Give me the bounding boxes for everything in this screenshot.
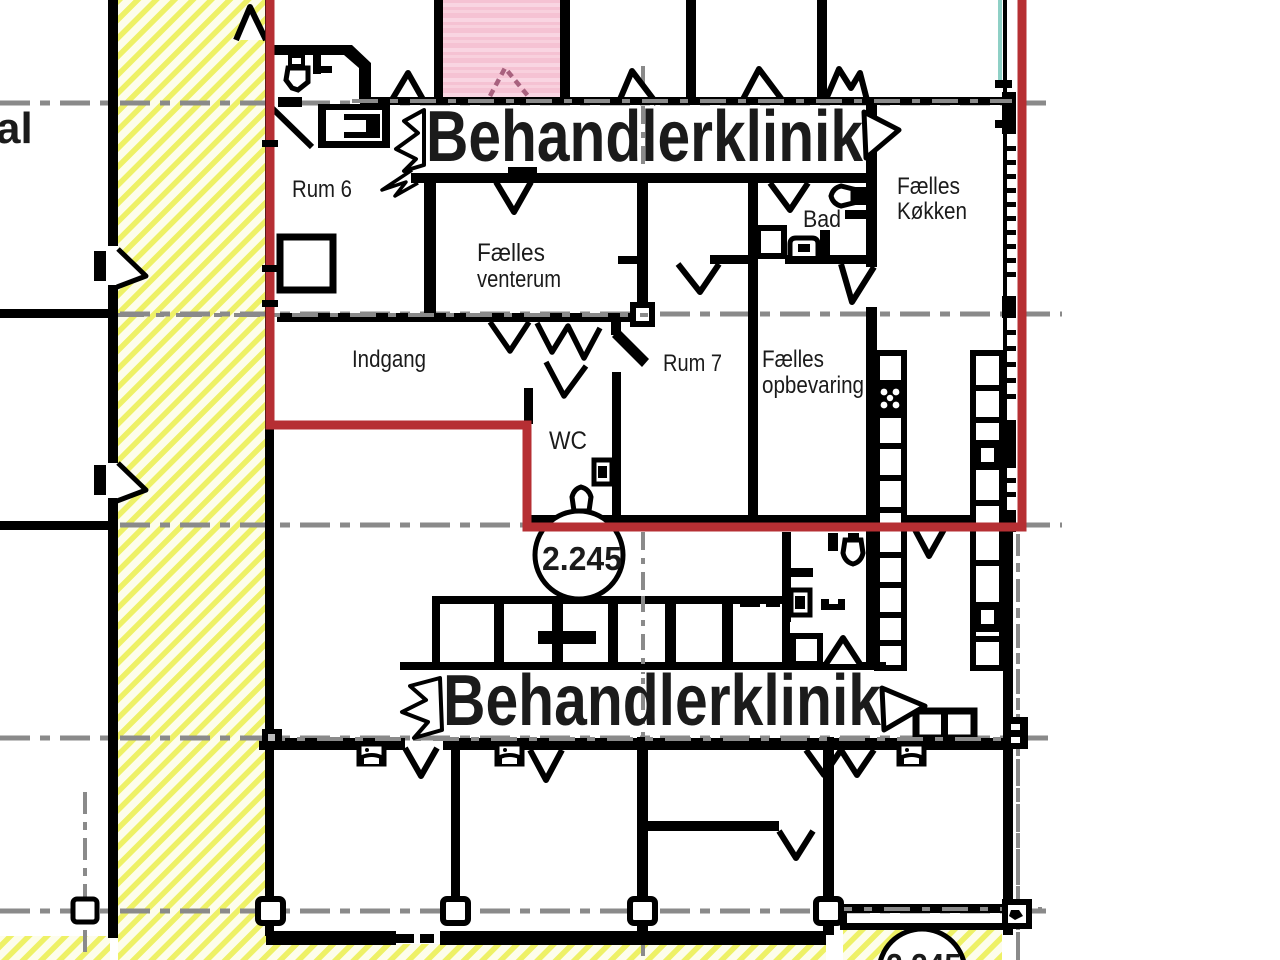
svg-text:al: al bbox=[0, 104, 33, 153]
svg-text:Behandlerklinik: Behandlerklinik bbox=[443, 661, 882, 741]
svg-text:2.245: 2.245 bbox=[886, 947, 961, 960]
svg-text:Fælles: Fælles bbox=[897, 173, 960, 200]
svg-text:venterum: venterum bbox=[477, 266, 561, 293]
svg-text:2.245: 2.245 bbox=[542, 540, 622, 577]
svg-text:Køkken: Køkken bbox=[897, 198, 967, 225]
svg-text:Bad: Bad bbox=[803, 206, 841, 233]
svg-text:Fælles: Fælles bbox=[762, 346, 824, 373]
svg-text:Rum 6: Rum 6 bbox=[292, 176, 352, 203]
svg-text:Indgang: Indgang bbox=[352, 346, 426, 373]
svg-text:opbevaring: opbevaring bbox=[762, 372, 864, 399]
svg-text:Fælles: Fælles bbox=[477, 239, 545, 267]
svg-text:WC: WC bbox=[549, 427, 587, 455]
svg-text:Behandlerklinik: Behandlerklinik bbox=[426, 97, 864, 177]
svg-text:Rum 7: Rum 7 bbox=[663, 350, 722, 377]
